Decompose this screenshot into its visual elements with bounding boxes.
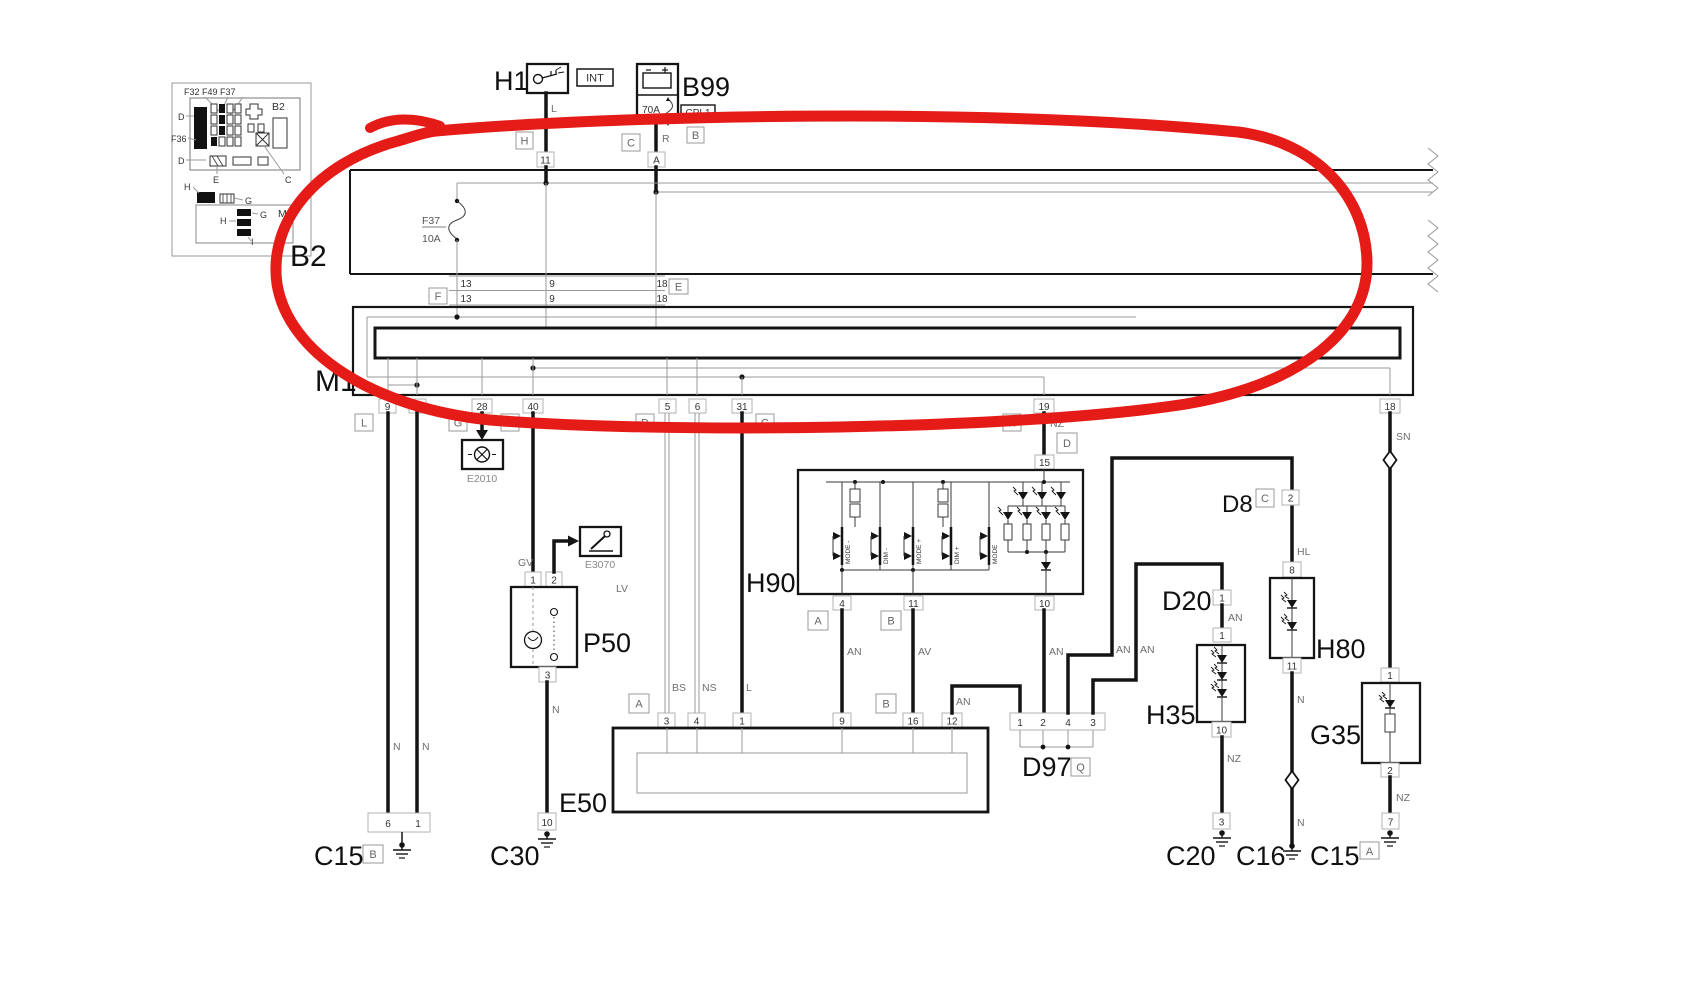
b2-fuse-name: F37 xyxy=(422,215,440,227)
c15b-pin-6: 6 xyxy=(385,819,391,830)
h90-resistors xyxy=(850,482,948,527)
c15b-label: C15 xyxy=(314,841,364,871)
wire-label-nz-g35: NZ xyxy=(1396,792,1411,804)
component-d97: 1 2 4 3 D97 Q xyxy=(1010,713,1105,782)
p50-pin-3: 3 xyxy=(545,671,551,682)
component-e3070: E3070 LV xyxy=(554,527,628,595)
h80-pin-8: 8 xyxy=(1289,566,1295,577)
wire-label-r: R xyxy=(662,133,670,145)
led-icon xyxy=(1211,647,1227,663)
wire-label-an-h90-10: AN xyxy=(1049,646,1064,658)
led-icon xyxy=(1379,692,1395,708)
e50-label: E50 xyxy=(559,788,607,818)
inset-h-top-label: H xyxy=(184,182,191,192)
pin-11: 11 xyxy=(540,156,551,167)
lighter-icon xyxy=(589,531,613,551)
left-ground-branch: N N 6 1 C15 B xyxy=(314,413,430,871)
d20-label: D20 xyxy=(1162,586,1212,616)
e50-pin-9: 9 xyxy=(839,717,845,728)
d97-pin-2: 2 xyxy=(1040,718,1046,729)
e50-pin-1: 1 xyxy=(739,717,745,728)
led-icon xyxy=(1281,592,1297,608)
component-h90: H90 MODE - DIM - xyxy=(746,469,1083,713)
p50-pin-1: 1 xyxy=(530,576,536,587)
e50-pin-12: 12 xyxy=(946,717,958,728)
ground-symbol-c30 xyxy=(538,831,556,847)
h80-pin-11: 11 xyxy=(1287,662,1298,673)
inset-d-top-label: D xyxy=(178,112,185,122)
wire-label-bs: BS xyxy=(672,682,686,694)
wire-label-gv: GV xyxy=(518,557,533,569)
wire-label-an-e50: AN xyxy=(956,696,971,708)
d97-label: D97 xyxy=(1022,752,1072,782)
wire-label-n1: N xyxy=(393,741,401,753)
led-icon xyxy=(1211,681,1227,697)
h35-label: H35 xyxy=(1146,700,1196,730)
wire-label-sn: SN xyxy=(1396,431,1411,443)
m1-top-pin-9: 9 xyxy=(549,294,555,305)
h90-pin-15: 15 xyxy=(1039,458,1051,469)
c20-label: C20 xyxy=(1166,841,1216,871)
connector-box-q: Q xyxy=(1076,762,1085,774)
wire-label-n-h80-bot: N xyxy=(1297,817,1305,829)
wire-label-an-d20: AN xyxy=(1228,612,1243,624)
p50-bulb-icon xyxy=(525,587,542,667)
m1-top-pin-13: 13 xyxy=(460,294,472,305)
connector-box-a-h90: A xyxy=(814,616,822,628)
arrow-down-icon xyxy=(476,430,488,440)
c30-pin-10: 10 xyxy=(541,818,553,829)
inset-d-mid-label: D xyxy=(178,156,185,166)
wire-label-hl: HL xyxy=(1297,546,1311,558)
ground-symbol-c16 xyxy=(1283,843,1301,859)
wire-label-an-h90: AN xyxy=(847,646,862,658)
connector-box-a-e50: A xyxy=(635,699,643,711)
connector-box-c15b: B xyxy=(369,849,376,861)
d97-pin-4: 4 xyxy=(1065,718,1071,729)
connector-box-d2: D xyxy=(1063,438,1071,450)
ground-symbol-c15b xyxy=(393,842,411,858)
h1-label: H1 xyxy=(494,66,529,96)
h80-label: H80 xyxy=(1316,634,1366,664)
wire-label-lv: LV xyxy=(616,583,628,595)
inset-f36-label: F36 xyxy=(171,134,187,144)
h90-switch-label-dim-plus: DIM + xyxy=(954,546,961,564)
h90-label: H90 xyxy=(746,568,796,598)
wiring-diagram-svg: F32 F49 F37 B2 D F36 D E C xyxy=(0,0,1692,989)
d8-label: D8 xyxy=(1222,491,1253,518)
connector-box-a-c15: A xyxy=(1366,846,1374,858)
led-icon xyxy=(1211,664,1227,680)
m1-pin-6: 6 xyxy=(695,402,701,413)
b2-pin-9: 9 xyxy=(549,279,555,290)
h35-pin-10: 10 xyxy=(1216,726,1228,737)
connector-box-c: C xyxy=(627,138,635,150)
b2-pin-18: 18 xyxy=(656,279,668,290)
inline-connector-diamond xyxy=(1384,451,1397,469)
component-b99: 70A B99 CPL1 B C R A xyxy=(622,64,730,192)
e3070-label: E3070 xyxy=(585,559,616,571)
fusebox-inset: F32 F49 F37 B2 D F36 D E C xyxy=(171,83,311,256)
inset-g-in-label: G xyxy=(260,210,267,220)
inset-relay-block xyxy=(194,107,207,149)
c16-label: C16 xyxy=(1236,841,1286,871)
wire-label-av-h90: AV xyxy=(918,646,931,658)
line-break-mark xyxy=(1428,220,1438,292)
wires-5-6-31: BS NS L xyxy=(665,413,752,713)
inset-h-in-label: H xyxy=(220,216,227,226)
m1-top-pin-18: 18 xyxy=(656,294,668,305)
wire-label-n-p50: N xyxy=(552,704,560,716)
connector-box-b: B xyxy=(692,130,699,142)
line-break-mark xyxy=(1428,148,1438,196)
e50-pin-4: 4 xyxy=(694,717,700,728)
ground-symbol-c20 xyxy=(1213,830,1231,846)
wire-label-l2: L xyxy=(746,682,752,694)
d97-pin-1: 1 xyxy=(1017,718,1023,729)
connector-box-h: H xyxy=(521,136,529,148)
inset-i-label: I xyxy=(251,237,254,247)
h1-int-tag: INT xyxy=(586,73,604,85)
p50-pin-2: 2 xyxy=(551,576,557,587)
diode-icon xyxy=(1041,562,1051,570)
connector-box-e: E xyxy=(675,282,682,294)
p50-label: P50 xyxy=(583,628,631,658)
bulb-icon xyxy=(468,447,496,462)
connector-box-l: L xyxy=(361,418,367,430)
bus-b2: F37 10A B2 xyxy=(290,148,1438,292)
c15a-label: C15 xyxy=(1310,841,1360,871)
b2-fuse-amp: 10A xyxy=(422,233,441,245)
h35-pin-1: 1 xyxy=(1219,631,1225,642)
ground-symbol-c15a xyxy=(1381,830,1399,846)
inset-c-label: C xyxy=(285,175,292,185)
wire-label-n-h80-top: N xyxy=(1297,694,1305,706)
key-icon xyxy=(534,67,565,84)
h90-switch-label-mode-minus: MODE - xyxy=(845,541,852,564)
h90-switch-label-mode-plus: MODE + xyxy=(916,539,923,564)
d8-pin-2: 2 xyxy=(1288,494,1294,505)
wire-label-n2: N xyxy=(422,741,430,753)
e50-pin-16: 16 xyxy=(907,717,919,728)
c30-label: C30 xyxy=(490,841,540,871)
g35-pin-1: 1 xyxy=(1387,671,1393,682)
c15b-pin-1: 1 xyxy=(415,819,421,830)
h90-switches: MODE - DIM - MODE + DIM + xyxy=(833,482,999,594)
d97-pin-3: 3 xyxy=(1090,718,1096,729)
h90-led-block xyxy=(998,482,1070,594)
d20-pin-1: 1 xyxy=(1219,594,1225,605)
battery-icon xyxy=(643,67,671,88)
pin-a: A xyxy=(653,156,660,167)
inset-b2-label: B2 xyxy=(272,101,285,113)
inset-fuse-row-label: F32 F49 F37 xyxy=(184,87,236,97)
wire-label-an-leg1: AN xyxy=(1116,644,1131,656)
wire-label-nz-h35: NZ xyxy=(1227,753,1242,765)
p50-rheostat-icon xyxy=(551,609,558,661)
branch-d8-h80: AN D8 C 2 HL 8 H80 11 N N C16 xyxy=(1068,458,1366,871)
branch-d20-h35: AN D20 1 AN 1 H35 10 NZ 3 C20 xyxy=(1093,564,1245,871)
wire-label-an-leg2: AN xyxy=(1140,644,1155,656)
component-e50: 3 4 1 9 16 12 A B E50 AN xyxy=(559,686,1020,818)
b2-label: B2 xyxy=(290,240,327,273)
wire-label-l: L xyxy=(551,103,557,115)
connector-box-c-d8: C xyxy=(1261,493,1269,505)
g35-label: G35 xyxy=(1310,720,1361,750)
c20-pin-3: 3 xyxy=(1219,818,1225,829)
connector-box-b-e50: B xyxy=(882,699,889,711)
inline-connector-diamond xyxy=(1286,771,1299,789)
b99-label: B99 xyxy=(682,72,730,102)
e50-pin-3: 3 xyxy=(664,717,670,728)
inset-m1-connectors xyxy=(229,209,258,236)
arrow-right-icon xyxy=(568,536,579,547)
c15a-pin-7: 7 xyxy=(1388,818,1394,829)
wire-label-ns: NS xyxy=(702,682,717,694)
led-icon xyxy=(1281,614,1297,630)
connector-box-b-h90: B xyxy=(887,616,894,628)
e2010-label: E2010 xyxy=(467,473,498,485)
h90-switch-label-mode: MODE xyxy=(992,544,999,564)
red-highlight-loop xyxy=(276,116,1367,428)
wiring-diagram-page: F32 F49 F37 B2 D F36 D E C xyxy=(0,0,1692,989)
b2-pin-13: 13 xyxy=(460,279,472,290)
connector-box-f: F xyxy=(435,291,442,303)
h90-switch-label-dim-minus: DIM - xyxy=(883,548,890,564)
inset-e-label: E xyxy=(213,175,219,185)
m1-pin-5: 5 xyxy=(665,402,671,413)
